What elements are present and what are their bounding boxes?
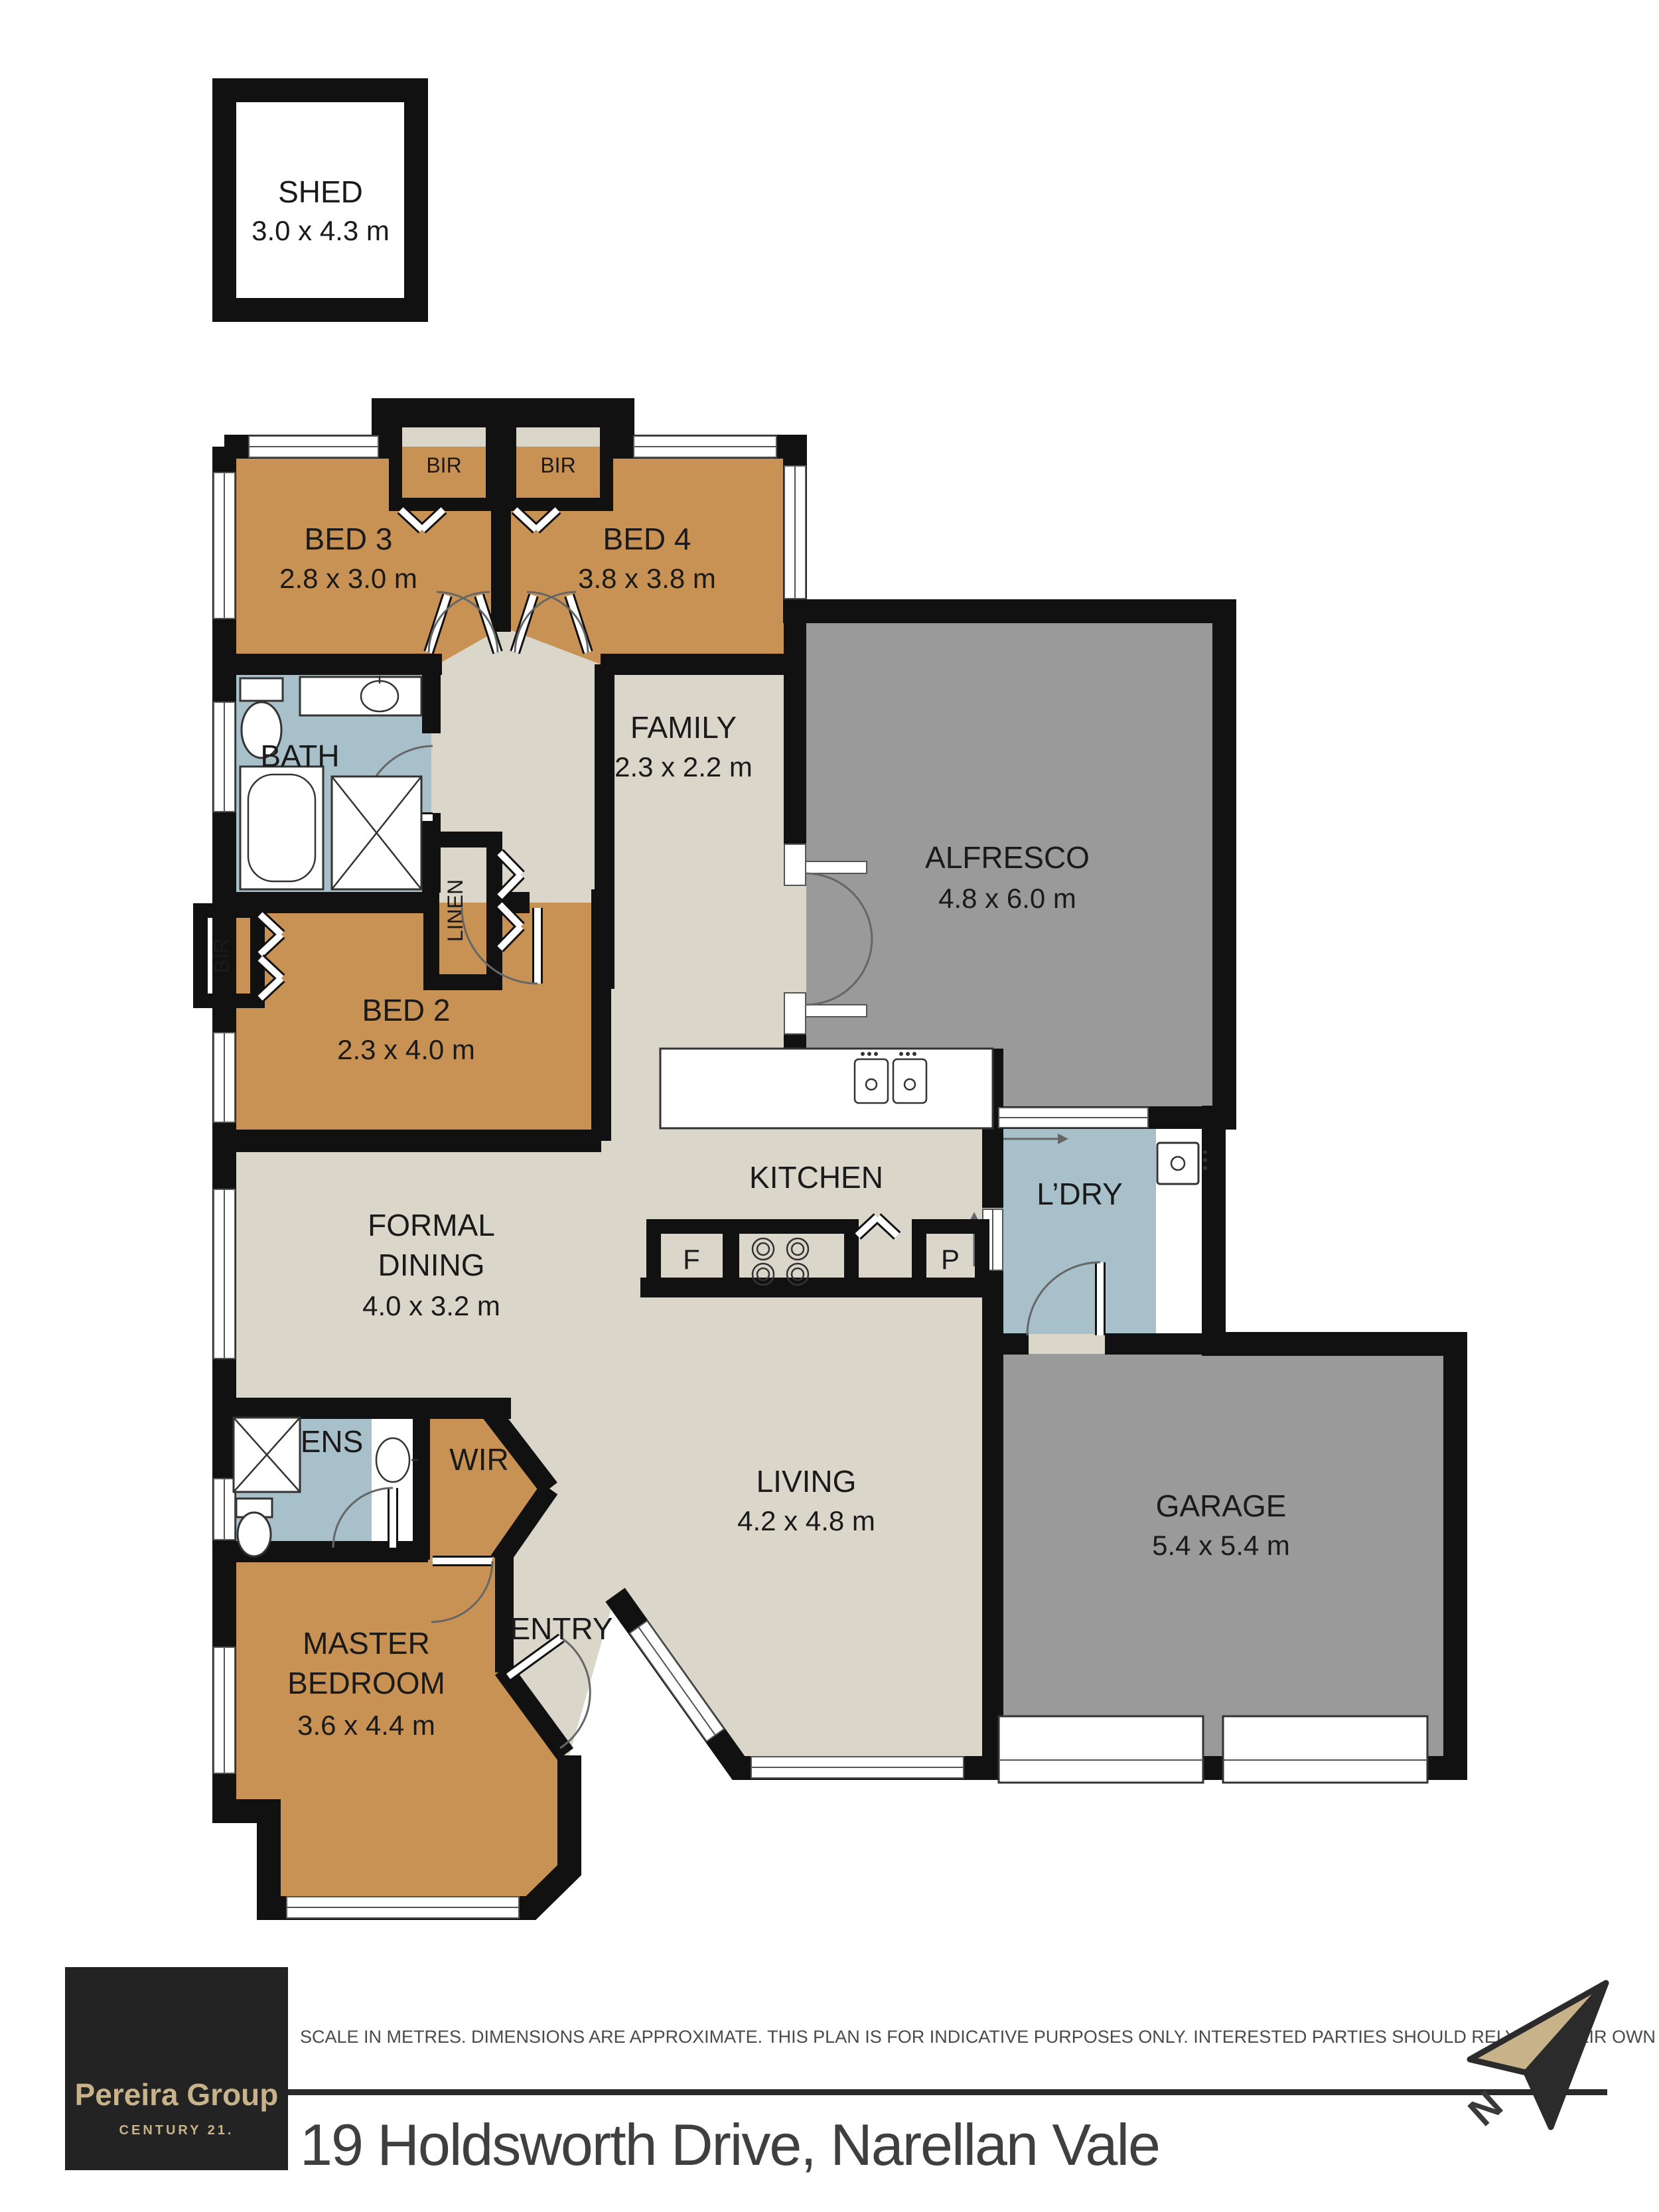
bed2-dims: 2.3 x 4.0 m: [337, 1034, 475, 1065]
bath-fixtures: [240, 676, 421, 889]
bed2-label: BED 2: [362, 993, 451, 1027]
bed4-label: BED 4: [603, 522, 691, 556]
master-label-1: MASTER: [303, 1626, 430, 1660]
ens-label: ENS: [301, 1424, 364, 1459]
kitchen-island: [660, 1049, 993, 1128]
bed3-dims: 2.8 x 3.0 m: [279, 563, 417, 594]
fridge-label: F: [683, 1244, 700, 1275]
living-label: LIVING: [757, 1464, 857, 1499]
logo-name: Pereira Group: [75, 2077, 279, 2112]
shed-label: SHED: [278, 175, 363, 209]
ens-toilet-bowl: [238, 1512, 271, 1556]
address-text: 19 Holdsworth Drive, Narellan Vale: [300, 2112, 1159, 2177]
alfresco-dims: 4.8 x 6.0 m: [938, 883, 1076, 914]
kitchen-label: KITCHEN: [749, 1160, 883, 1195]
bed4-dims: 3.8 x 3.8 m: [578, 563, 716, 594]
dining-label-2: DINING: [378, 1248, 485, 1282]
linen-label: LINEN: [443, 879, 467, 942]
master-label-2: BEDROOM: [287, 1666, 445, 1700]
footer: Pereira Group CENTURY 21. SCALE IN METRE…: [65, 1967, 1659, 2177]
logo-box: [65, 1967, 288, 2170]
bath-toilet-tank: [240, 678, 283, 701]
room-laundry-floor: [1003, 1128, 1156, 1334]
bir-bed4-label: BIR: [540, 453, 575, 477]
dining-dims: 4.0 x 3.2 m: [362, 1290, 500, 1321]
laundry-label: L’DRY: [1037, 1177, 1123, 1211]
pantry-label: P: [941, 1244, 960, 1275]
north-arrow-icon: N: [1460, 1983, 1606, 2134]
logo-brand: CENTURY 21.: [119, 2123, 234, 2138]
footer-divider: [288, 2089, 1607, 2095]
family-dims: 2.3 x 2.2 m: [614, 751, 753, 782]
disclaimer-text: SCALE IN METRES. DIMENSIONS ARE APPROXIM…: [300, 2027, 1659, 2047]
entry-label: ENTRY: [510, 1611, 613, 1646]
alfresco-label: ALFRESCO: [925, 840, 1090, 875]
family-label: FAMILY: [630, 710, 737, 745]
dining-label-1: FORMAL: [368, 1208, 495, 1242]
master-dims: 3.6 x 4.4 m: [297, 1710, 435, 1741]
garage-dims: 5.4 x 5.4 m: [1152, 1530, 1290, 1561]
laundry-sink: [1157, 1143, 1198, 1184]
floor-plan: SHED 3.0 x 4.3 m: [0, 0, 1659, 2212]
shed-dims: 3.0 x 4.3 m: [252, 215, 390, 246]
bir-bed3-label: BIR: [426, 453, 461, 477]
bath-label: BATH: [260, 739, 339, 773]
bir-bed2-label: BIR: [210, 938, 234, 973]
living-dims: 4.2 x 4.8 m: [737, 1505, 875, 1536]
garage-label: GARAGE: [1156, 1489, 1287, 1523]
wir-label: WIR: [449, 1442, 508, 1477]
room-shed: SHED 3.0 x 4.3 m: [224, 90, 416, 310]
bed3-label: BED 3: [305, 522, 393, 556]
